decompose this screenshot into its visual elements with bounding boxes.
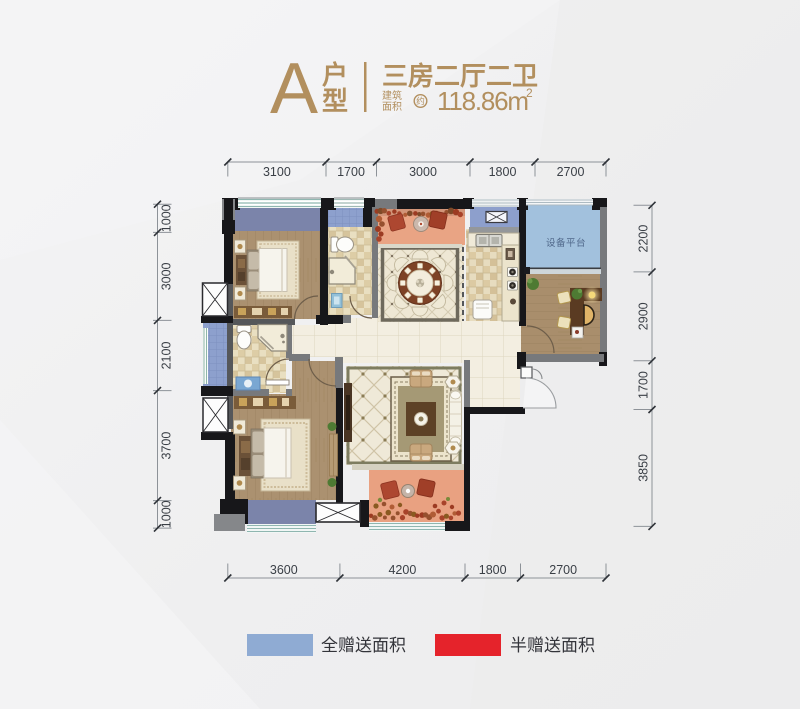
svg-text:2100: 2100 xyxy=(160,342,174,370)
svg-text:建筑: 建筑 xyxy=(382,89,402,102)
svg-text:1800: 1800 xyxy=(489,165,517,179)
svg-text:2900: 2900 xyxy=(637,302,651,330)
svg-text:面积: 面积 xyxy=(382,101,402,113)
svg-text:3600: 3600 xyxy=(270,563,298,577)
svg-text:1700: 1700 xyxy=(637,371,651,399)
svg-text:A: A xyxy=(270,49,318,129)
svg-text:2200: 2200 xyxy=(637,225,651,253)
svg-text:设备平台: 设备平台 xyxy=(546,237,586,249)
svg-text:1700: 1700 xyxy=(337,165,365,179)
svg-text:全赠送面积: 全赠送面积 xyxy=(321,636,406,655)
svg-text:4200: 4200 xyxy=(388,563,416,577)
svg-text:3850: 3850 xyxy=(637,454,651,482)
svg-text:3000: 3000 xyxy=(160,262,174,290)
svg-text:3000: 3000 xyxy=(409,165,437,179)
svg-text:1800: 1800 xyxy=(479,563,507,577)
svg-text:1000: 1000 xyxy=(160,500,174,528)
svg-text:半赠送面积: 半赠送面积 xyxy=(510,636,595,655)
svg-text:2700: 2700 xyxy=(557,165,585,179)
svg-text:3700: 3700 xyxy=(160,432,174,460)
svg-text:3100: 3100 xyxy=(263,165,291,179)
svg-text:2: 2 xyxy=(526,86,533,100)
svg-text:2700: 2700 xyxy=(549,563,577,577)
svg-text:约: 约 xyxy=(416,96,425,106)
svg-text:1000: 1000 xyxy=(160,204,174,232)
svg-text:118.86m: 118.86m xyxy=(437,86,528,116)
svg-text:型: 型 xyxy=(322,86,348,116)
